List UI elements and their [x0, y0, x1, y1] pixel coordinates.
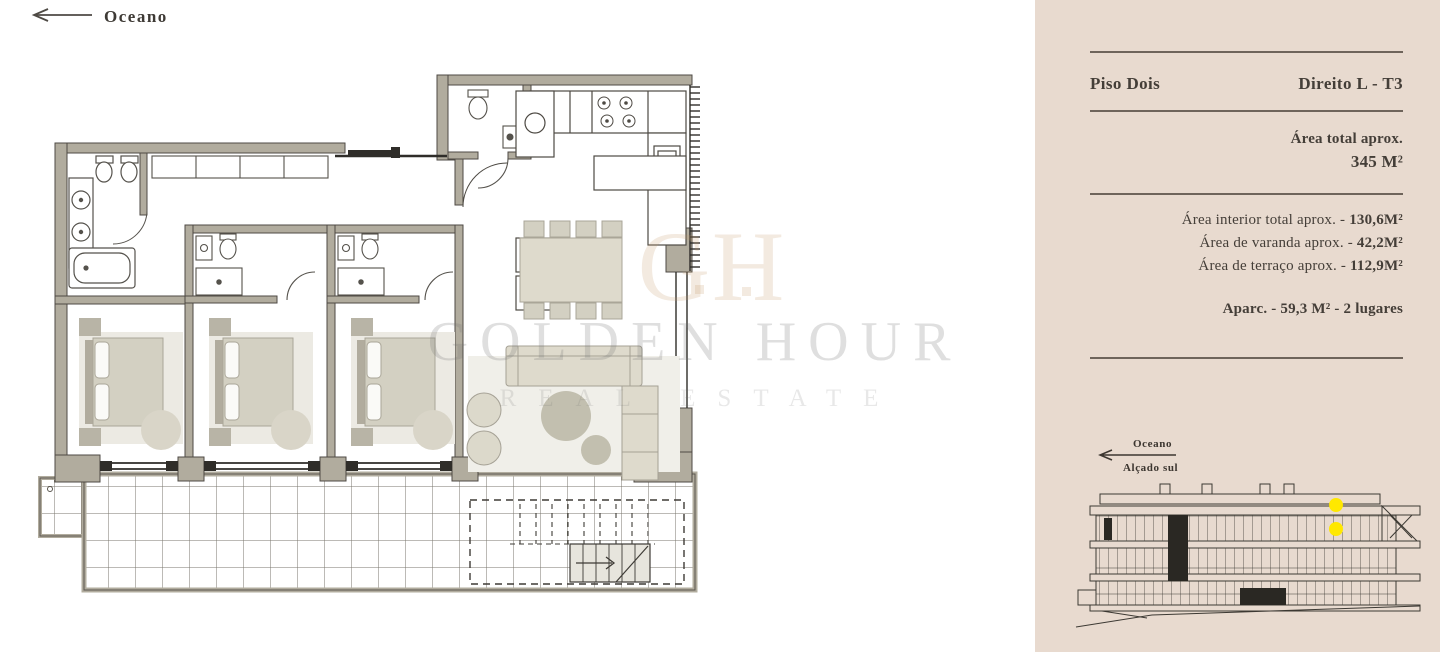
unit-highlight-dot — [1329, 522, 1343, 536]
area-value: 112,9M² — [1350, 258, 1403, 274]
bidet-icon — [121, 156, 138, 182]
ensuite-bathroom — [196, 234, 315, 300]
sink-icon — [338, 236, 354, 260]
unit-label: Direito L - T3 — [1298, 74, 1403, 94]
divider — [1090, 357, 1403, 359]
kitchen-peninsula — [594, 156, 686, 190]
watermark-title: GOLDEN HOUR — [428, 311, 963, 373]
parking-label: Aparc. — [1223, 301, 1268, 317]
floor-label: Piso Dois — [1090, 74, 1160, 94]
brochure-page: Oceano GH GOLDEN HOUR REAL ESTATE Piso D… — [0, 0, 1440, 652]
floor-plan: Oceano GH GOLDEN HOUR REAL ESTATE — [0, 0, 1035, 652]
orientation-arrow — [34, 9, 92, 21]
watermark-subtitle: REAL ESTATE — [500, 385, 901, 412]
toilet-icon — [96, 156, 113, 182]
bathtub-icon — [69, 248, 135, 288]
area-line: Área de varanda aprox. - 42,2M² — [1090, 235, 1403, 252]
bedroom-1 — [79, 318, 183, 450]
pouf-icon — [413, 410, 453, 450]
parking-extra: 2 lugares — [1344, 301, 1403, 317]
entrance-door-icon — [335, 147, 447, 158]
bed-icon — [209, 318, 313, 450]
divider — [1090, 51, 1403, 53]
orientation-label: Oceano — [104, 7, 168, 26]
area-value: 42,2M² — [1357, 235, 1403, 251]
elevation-arrow-icon — [1090, 448, 1180, 462]
area-label: Área de varanda aprox. — [1199, 235, 1343, 251]
divider — [1090, 193, 1403, 195]
sink-icon — [196, 236, 212, 260]
toilet-icon — [468, 90, 488, 119]
bed-icon — [79, 318, 183, 450]
divider — [1090, 110, 1403, 112]
panel-header: Piso Dois Direito L - T3 — [1090, 74, 1403, 94]
parking-value: 59,3 M² — [1280, 301, 1330, 317]
door-arc — [425, 272, 453, 300]
separator: - — [1337, 258, 1350, 274]
toilet-icon — [220, 234, 236, 259]
separator: - — [1267, 301, 1280, 317]
building-elevation — [1072, 478, 1432, 628]
shower-icon — [196, 268, 242, 295]
pouf-icon — [271, 410, 311, 450]
toilet-icon — [362, 234, 378, 259]
shower-icon — [338, 268, 384, 295]
separator: - — [1336, 212, 1349, 228]
pouf-icon — [141, 410, 181, 450]
ensuite-bathroom — [338, 234, 453, 300]
area-label: Área interior total aprox. — [1182, 212, 1336, 228]
door-arc — [287, 272, 315, 300]
area-label: Área de terraço aprox. — [1198, 258, 1337, 274]
coffee-table-icon — [581, 435, 611, 465]
closet-row — [152, 156, 328, 178]
separator: - — [1344, 235, 1357, 251]
area-value: 130,6M² — [1349, 212, 1403, 228]
separator: - — [1330, 301, 1343, 317]
main-bathroom — [69, 156, 147, 288]
area-line: Área de terraço aprox. - 112,9M² — [1090, 258, 1403, 275]
door-arc — [478, 158, 508, 188]
door-arc — [463, 163, 507, 207]
armchair-icon — [467, 431, 501, 465]
parking-line: Aparc. - 59,3 M² - 2 lugares — [1090, 301, 1403, 318]
elevation-caption: Alçado sul — [1123, 462, 1178, 474]
bedroom-2 — [209, 318, 313, 450]
watermark-monogram: GH — [638, 211, 786, 322]
guest-wc — [468, 90, 518, 188]
dining-table-icon — [520, 221, 622, 319]
unit-highlight-dot — [1329, 498, 1343, 512]
total-area-value: 345 M² — [1090, 152, 1403, 172]
area-line: Área interior total aprox. - 130,6M² — [1090, 212, 1403, 229]
armchair-icon — [467, 393, 501, 427]
total-area-label: Área total aprox. — [1090, 131, 1403, 148]
info-panel: Piso Dois Direito L - T3 Área total apro… — [1035, 0, 1440, 652]
